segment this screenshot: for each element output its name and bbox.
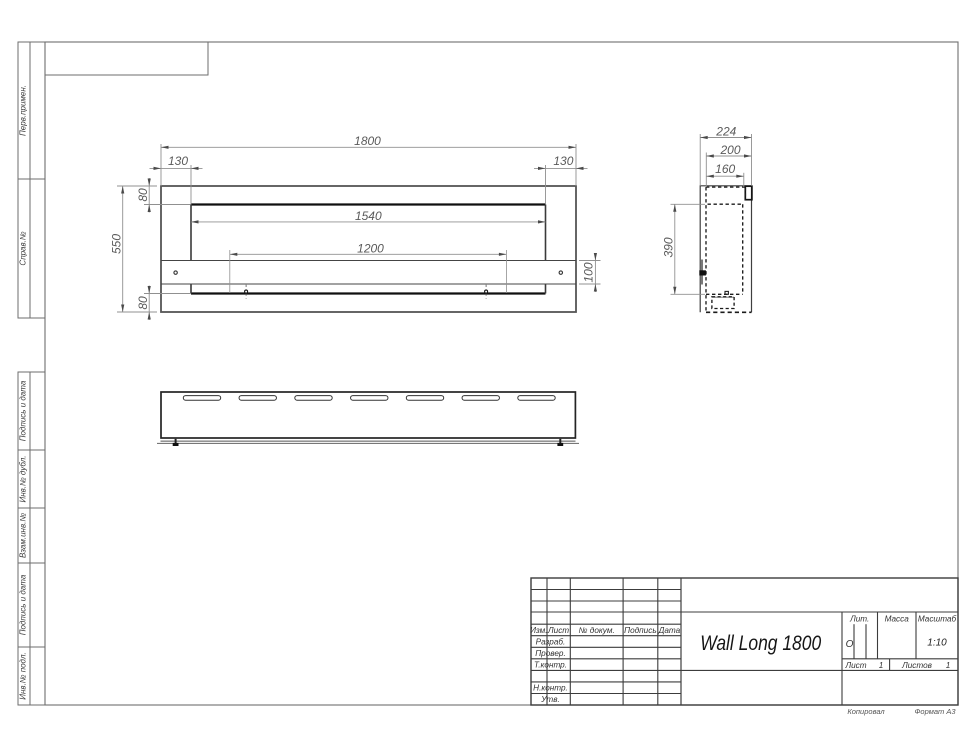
svg-text:224: 224 bbox=[715, 124, 736, 138]
svg-text:130: 130 bbox=[168, 154, 188, 168]
svg-text:1800: 1800 bbox=[354, 134, 381, 148]
svg-text:Масса: Масса bbox=[885, 615, 910, 624]
svg-text:О: О bbox=[846, 639, 854, 650]
svg-text:Провер.: Провер. bbox=[535, 649, 566, 658]
svg-text:Лист: Лист bbox=[547, 626, 569, 635]
svg-text:200: 200 bbox=[719, 143, 740, 157]
svg-text:Дата: Дата bbox=[658, 626, 681, 635]
svg-text:160: 160 bbox=[715, 162, 735, 176]
svg-text:Копировал: Копировал bbox=[847, 707, 885, 716]
svg-text:Разраб.: Разраб. bbox=[536, 638, 566, 647]
svg-text:Справ.№: Справ.№ bbox=[19, 231, 28, 265]
svg-text:Лит.: Лит. bbox=[849, 615, 869, 624]
svg-text:Масштаб: Масштаб bbox=[918, 615, 957, 624]
svg-text:1540: 1540 bbox=[355, 209, 382, 223]
svg-text:Подпись и дата: Подпись и дата bbox=[19, 574, 28, 635]
svg-text:Подпись и дата: Подпись и дата bbox=[19, 380, 28, 441]
svg-text:Перв.примен.: Перв.примен. bbox=[19, 85, 28, 136]
svg-text:Формат А3: Формат А3 bbox=[914, 707, 956, 716]
svg-text:550: 550 bbox=[110, 234, 124, 254]
svg-text:Лист: Лист bbox=[844, 661, 866, 670]
svg-text:130: 130 bbox=[553, 154, 573, 168]
svg-text:1: 1 bbox=[879, 661, 884, 670]
svg-text:Подпись: Подпись bbox=[624, 626, 656, 635]
svg-text:1200: 1200 bbox=[357, 241, 384, 255]
svg-text:Взам.инв.№: Взам.инв.№ bbox=[19, 513, 28, 558]
svg-text:80: 80 bbox=[136, 188, 150, 202]
svg-text:Листов: Листов bbox=[901, 661, 933, 670]
svg-text:1: 1 bbox=[946, 661, 951, 670]
svg-text:Wall Long 1800: Wall Long 1800 bbox=[700, 632, 821, 655]
svg-text:80: 80 bbox=[136, 296, 150, 310]
svg-text:1:10: 1:10 bbox=[927, 638, 947, 649]
svg-text:390: 390 bbox=[661, 237, 675, 257]
svg-text:100: 100 bbox=[581, 262, 595, 282]
svg-text:Инв.№ подл.: Инв.№ подл. bbox=[19, 652, 28, 699]
svg-text:Изм.: Изм. bbox=[530, 626, 547, 635]
svg-text:Утв.: Утв. bbox=[540, 695, 560, 704]
svg-text:Н.контр.: Н.контр. bbox=[533, 684, 568, 693]
svg-text:Т.контр.: Т.контр. bbox=[534, 661, 567, 670]
svg-text:Инв.№ дубл.: Инв.№ дубл. bbox=[19, 456, 28, 503]
svg-text:№ докум.: № докум. bbox=[579, 626, 615, 635]
